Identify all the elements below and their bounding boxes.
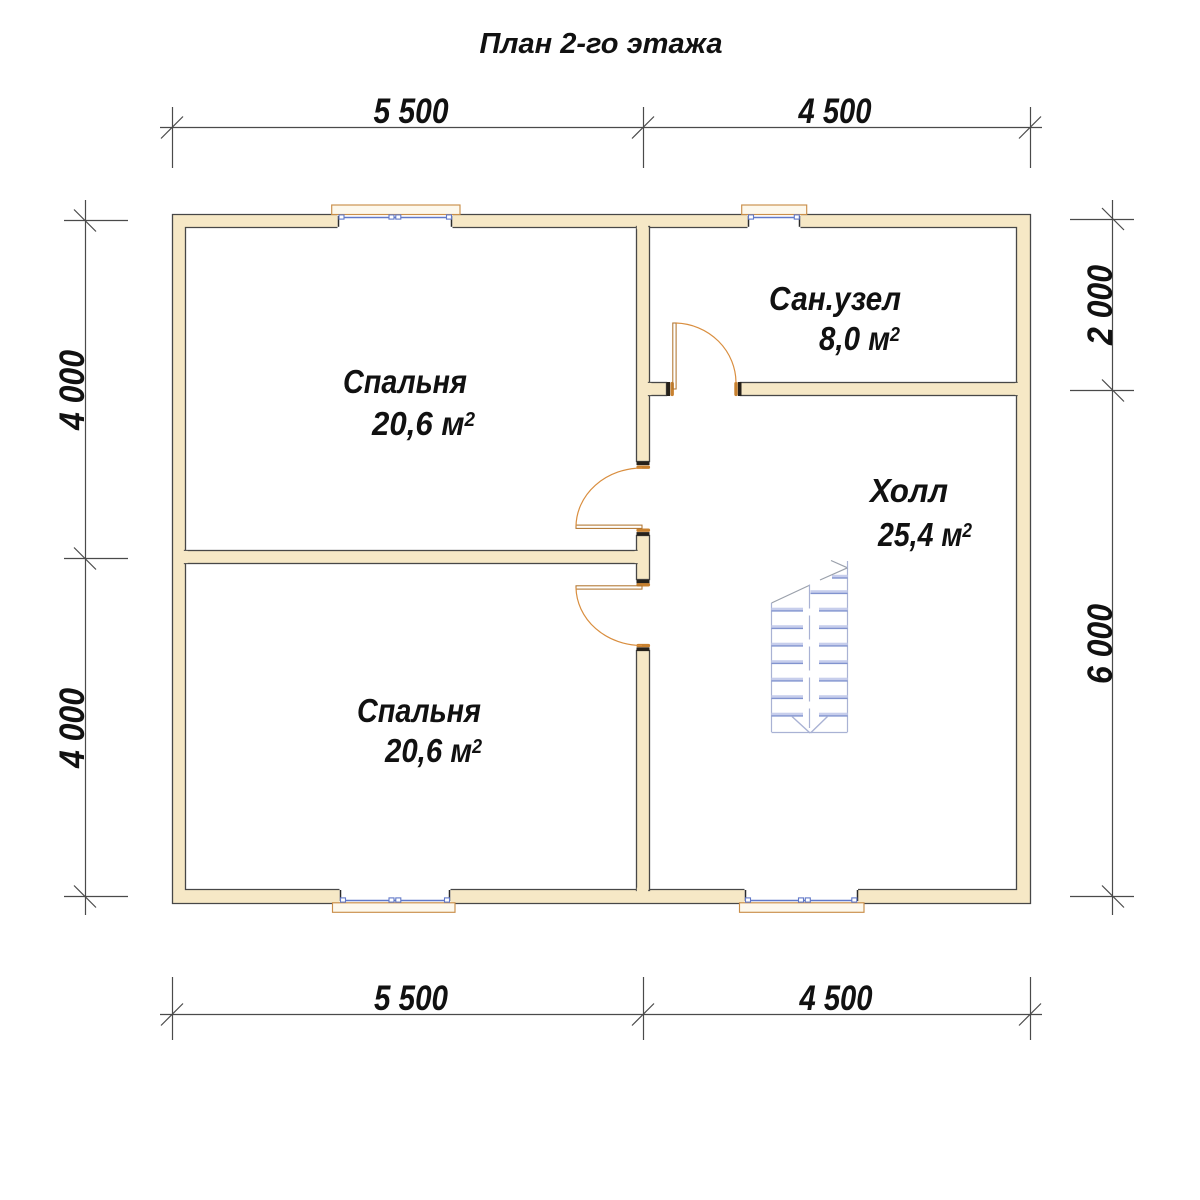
svg-text:4 000: 4 000 bbox=[53, 688, 92, 769]
svg-text:Сан.узел: Сан.узел bbox=[769, 280, 901, 317]
svg-text:4 500: 4 500 bbox=[799, 979, 873, 1018]
svg-text:Холл: Холл bbox=[868, 472, 948, 509]
svg-text:4 500: 4 500 bbox=[798, 92, 872, 131]
svg-text:4 000: 4 000 bbox=[53, 350, 92, 431]
svg-text:План 2-го этажа: План 2-го этажа bbox=[480, 28, 723, 60]
svg-text:2 000: 2 000 bbox=[1081, 265, 1120, 346]
svg-text:Спальня: Спальня bbox=[343, 363, 467, 400]
svg-text:5 500: 5 500 bbox=[374, 979, 448, 1018]
svg-text:25,4 м2: 25,4 м2 bbox=[877, 516, 972, 553]
svg-text:6 000: 6 000 bbox=[1081, 604, 1120, 684]
svg-text:20,6 м2: 20,6 м2 bbox=[384, 732, 482, 769]
svg-text:20,6 м2: 20,6 м2 bbox=[371, 405, 475, 442]
svg-text:Спальня: Спальня bbox=[357, 692, 481, 729]
svg-text:5 500: 5 500 bbox=[374, 92, 449, 131]
svg-text:8,0 м2: 8,0 м2 bbox=[819, 320, 900, 357]
